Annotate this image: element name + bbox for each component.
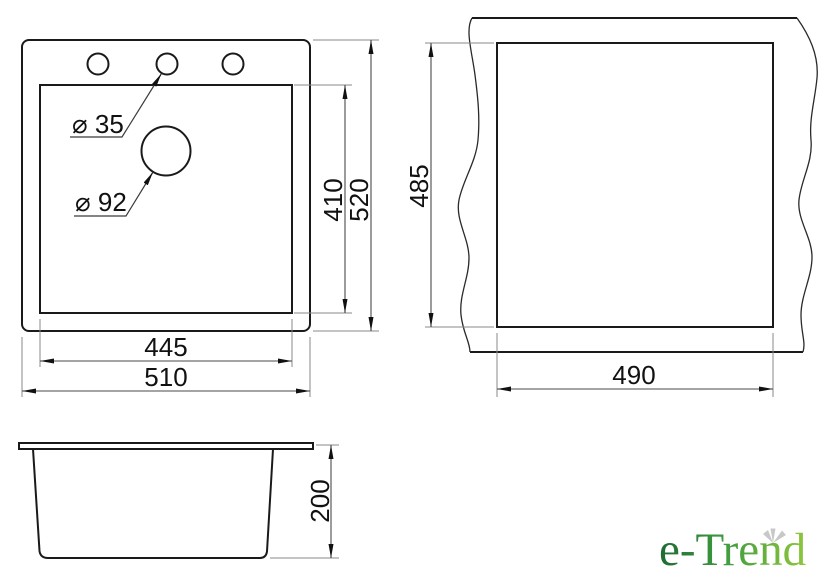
dim-200-label: 200 [305,479,335,522]
bowl-profile [33,449,273,558]
logo-text: e-Trend [659,524,806,576]
tap-hole-right [223,54,244,75]
diameter-35-label: ⌀ 35 [72,109,124,139]
diameter-92-label: ⌀ 92 [75,187,127,217]
dim-510-label: 510 [144,362,187,392]
dim-520-label: 520 [344,178,374,221]
technical-drawing-sheet: ⌀ 35 ⌀ 92 410 520 445 510 [0,0,840,583]
main-faucet-hole [142,127,191,176]
dim-445-label: 445 [144,332,187,362]
dim-485-label: 485 [404,164,434,207]
tap-hole-center [157,54,178,75]
sink-outer-rim-outline [22,40,310,331]
e-trend-logo: e-Trend [659,524,806,576]
sink-dimension-drawing: ⌀ 35 ⌀ 92 410 520 445 510 [0,0,840,583]
break-line-left [458,18,479,352]
sink-top-view: ⌀ 35 ⌀ 92 410 520 445 510 [22,40,379,397]
dim-490-label: 490 [612,360,655,390]
tap-hole-left [88,54,109,75]
cutout-opening-outline [497,43,773,327]
break-line-right [797,18,817,352]
countertop-cutout-view: 485 490 [404,18,817,397]
rim-profile [19,443,313,449]
sink-side-view: 200 [19,443,339,558]
